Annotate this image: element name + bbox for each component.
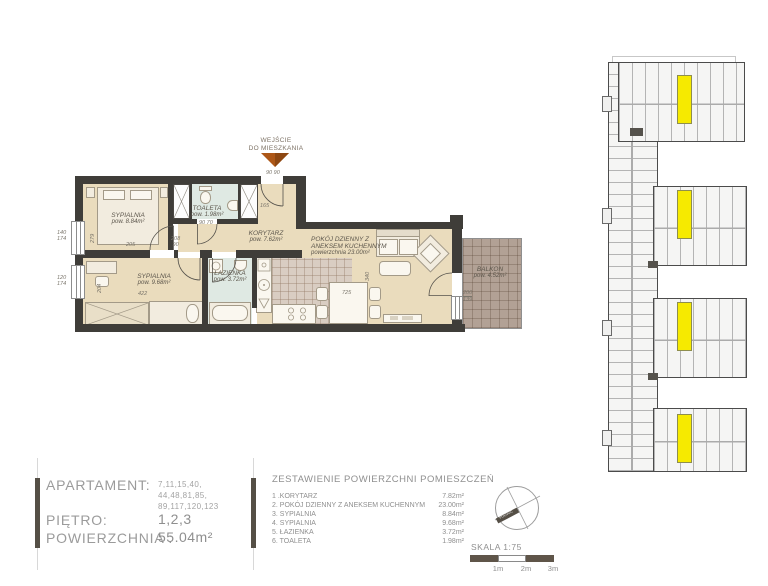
wall-bottom [75,324,465,332]
wall-corner-nub [450,215,463,223]
pillow [186,304,199,323]
table-row: 6. TOALETA 1.98m² [272,537,464,546]
dim-window1: 140 174 [57,230,66,242]
entrance-label-line2: DO MIESZKANIA [216,145,336,153]
wall-right-upper [452,229,462,273]
nightstand [86,187,95,198]
wardrobe [85,302,149,326]
pillow [130,190,152,200]
entrance-arrow-icon [261,153,289,169]
building-stairwell-mark [648,261,658,268]
tv-stand-detail [390,316,398,320]
room-table: 1 .KORYTARZ 7.82m² 2. POKÓJ DZIENNY Z AN… [272,492,464,546]
balcony-floor [462,238,522,329]
door-toilet [197,224,218,245]
table-row: 3. SYPIALNIA 8.84m² [272,510,464,519]
kitchen-appliances-icon [256,257,272,313]
dim-bedroom1-width: 205 [126,242,135,248]
scale-bar-segment [498,555,526,562]
highlighted-apartment-1 [677,75,692,124]
window-living-balcony [451,296,463,320]
dim-dining: 725 [342,290,351,296]
divider-bar-mid [251,478,256,548]
wall-toilet-right [238,184,240,220]
building-stairwell-mark [630,128,643,136]
wall-top-left [75,176,261,184]
balcony-label: BALKON pow. 4.52m² [474,266,507,280]
wardrobe-hatch-icon [86,303,148,325]
apartment-label: APARTAMENT: [46,477,150,493]
sofa-cushion [399,239,418,255]
area-label: POWIERZCHNIA : [46,530,173,546]
wall-mid-4 [236,250,302,258]
scale-bar-segment [470,555,498,562]
chair [369,305,381,319]
bedroom2-label: SYPIALNIA pow. 9.68m² [137,273,171,287]
scale-label: SKALA 1:75 [471,542,522,552]
pillow [103,190,125,200]
dim-living-depth: 340 [365,272,371,281]
dim-window2: 120 174 [57,275,66,287]
building-bump [602,430,612,446]
bedroom1-label: SYPIALNIA pow. 8.84m² [111,212,145,226]
shaft-left [173,184,190,219]
compass-icon: PÓŁNOC [494,485,542,533]
dim-bedroom2-height: 204 [97,284,103,293]
nightstand [160,187,168,198]
dim-bedroom2-width: 422 [138,291,147,297]
dim-bedroom1-height: 279 [90,234,96,243]
wall-living-top [296,222,463,229]
shaft-right [240,184,258,219]
dim-toilet-door: 90 70 [199,220,213,226]
chair [316,287,328,301]
floor-plan-page: WEJŚCIE DO MIESZKANIA [0,0,768,586]
living-label: POKÓJ DZIENNY Z ANEKSEM KUCHENNYM powier… [311,236,386,257]
table-row: 1 .KORYTARZ 7.82m² [272,492,464,501]
scale-tick-1m: 1m [493,564,503,573]
stove-burners-icon [283,305,312,323]
entrance-label: WEJŚCIE DO MIESZKANIA [216,137,336,153]
bathtub-basin [212,305,248,321]
table-row: 5. ŁAZIENKA 3.72m² [272,528,464,537]
wall-mid-3 [200,250,212,258]
chair [316,305,328,319]
building-bump [602,320,612,336]
building-wing-3 [653,298,747,378]
wall-mid-2 [174,250,178,258]
building-wing-4 [653,408,747,472]
highlighted-apartment-3 [677,302,692,351]
room-table-title: ZESTAWIENIE POWIERZCHNI POMIESZCZEŃ [272,474,494,485]
building-bump [602,96,612,112]
building-wing-2 [653,186,747,266]
coffee-table [379,261,411,276]
building-stairwell-mark [648,373,658,380]
floor-value: 1,2,3 [158,511,192,527]
area-value: 55.04m² [158,529,213,545]
toilet-bowl [200,191,211,204]
door-balcony [429,273,453,297]
scale-tick-2m: 2m [521,564,531,573]
dining-table [329,282,368,324]
toilet-label: TOALETA pow. 1.98m² [191,205,224,219]
highlighted-apartment-4 [677,414,692,463]
window-bedroom2 [71,265,85,299]
window-bedroom1 [71,221,85,255]
shaft-hatch-icon [241,185,257,218]
door-bedroom2 [178,258,201,281]
shaft-hatch-icon [174,185,189,218]
wall-under-shaft-left [173,219,197,224]
toilet-sink [227,200,238,211]
scale-bar-segment [526,555,554,562]
dim-corridor: 165 [260,203,269,209]
apartment-numbers: 7,11,15,40, 44,48,81,85, 89,117,120,123 [158,479,219,512]
entrance-label-line1: WEJŚCIE [216,137,336,145]
table-row: 2. POKÓJ DZIENNY Z ANEKSEM KUCHENNYM 23.… [272,501,464,510]
scale-tick-3m: 3m [548,564,558,573]
corridor-label: KORYTARZ pow. 7.62m² [249,230,284,244]
floor-label: PIĘTRO: [46,512,108,528]
dim-bedroom1-door: 208 90 [171,236,180,248]
wall-bedroom2-bathroom [202,258,208,327]
wall-bathroom-kitchen [252,258,257,308]
highlighted-apartment-2 [677,190,692,239]
table-row: 4. SYPIALNIA 9.68m² [272,519,464,528]
dim-balcony-door: 200 139 [463,290,472,303]
building-bump [602,208,612,224]
armchair-cushion [420,243,441,264]
bathroom-label: ŁAZIENKA pow. 3.72m² [214,270,247,284]
wall-mid-1 [75,250,150,258]
wall-corridor-right [296,176,306,224]
divider-bar-left [35,478,40,548]
chair [369,287,381,301]
tv-stand-detail [402,316,413,320]
desk [86,261,117,274]
dim-entrance: 90 90 [266,170,280,176]
